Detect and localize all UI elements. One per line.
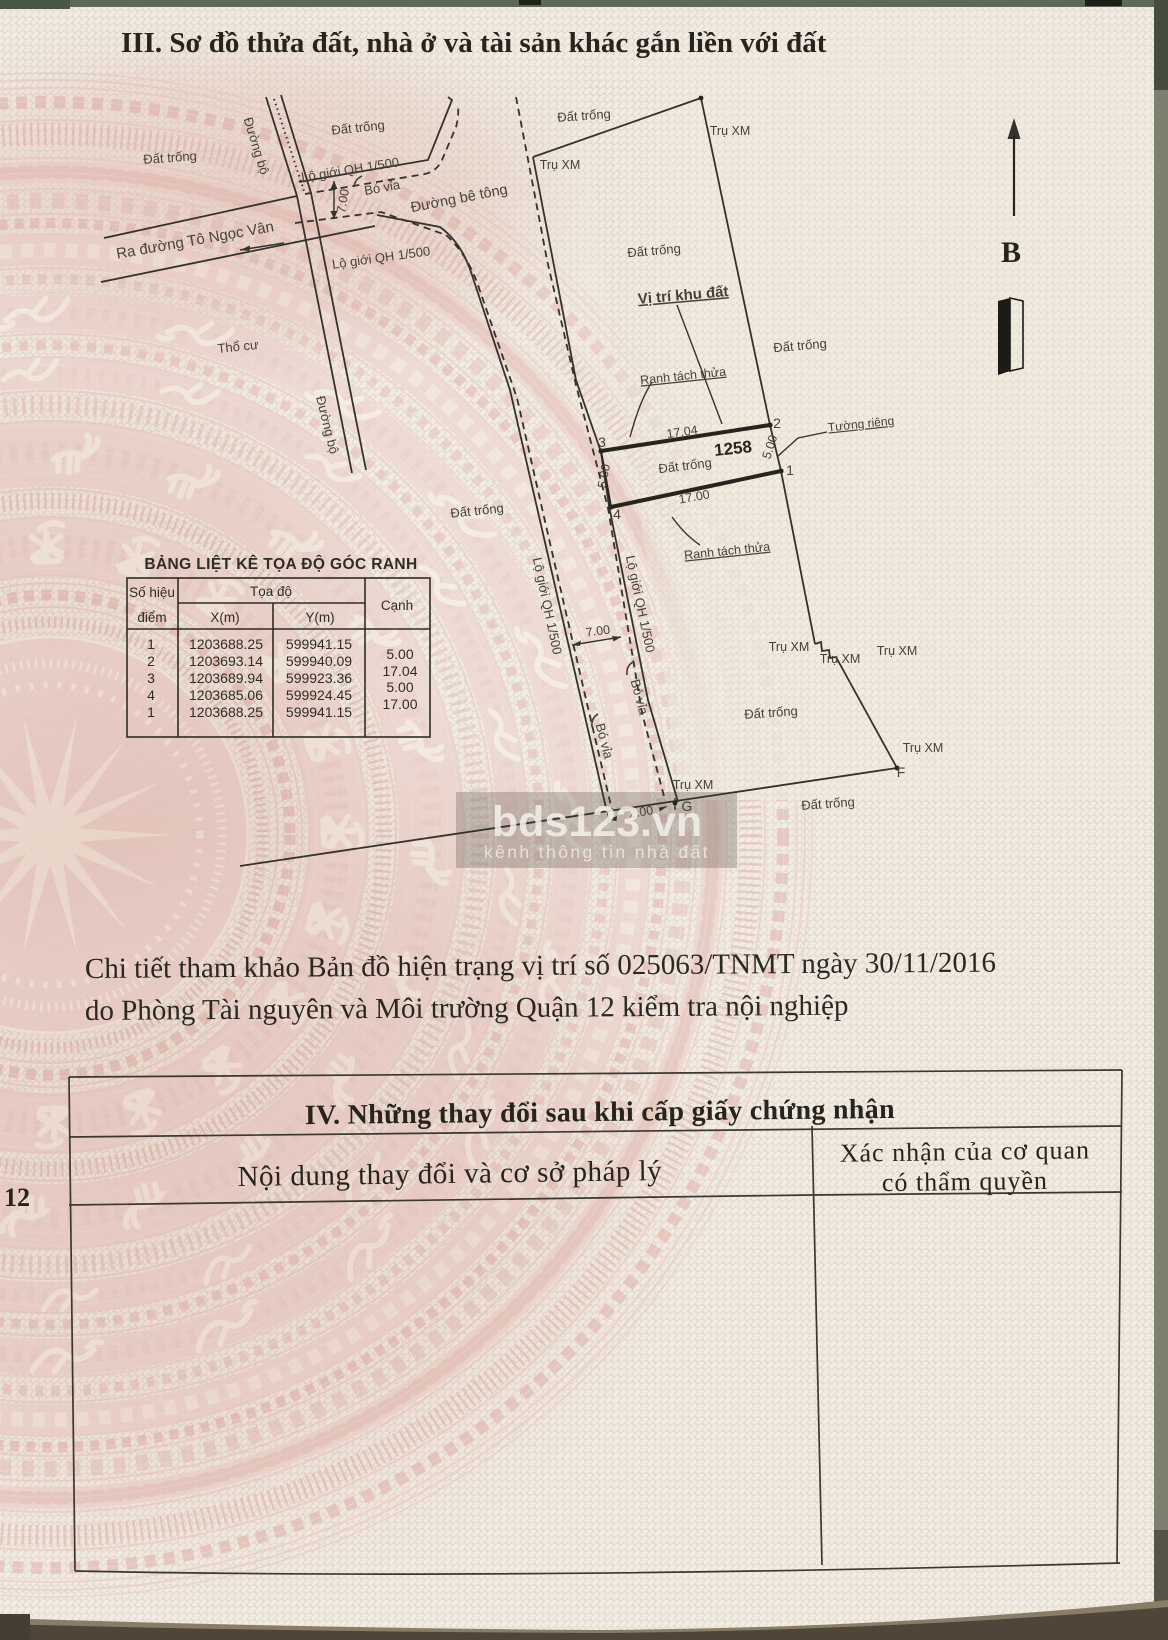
svg-text:Trụ XM: Trụ XM <box>673 778 714 792</box>
svg-text:2: 2 <box>773 415 781 431</box>
svg-text:Cạnh: Cạnh <box>381 598 413 613</box>
svg-text:3: 3 <box>147 670 155 686</box>
svg-text:III. Sơ đồ thửa đất, nhà ở và: III. Sơ đồ thửa đất, nhà ở và tài sản kh… <box>121 27 827 59</box>
svg-text:1203693.14: 1203693.14 <box>189 653 263 669</box>
svg-text:kênh thông tin nhà đất: kênh thông tin nhà đất <box>484 842 710 862</box>
svg-text:Trụ XM: Trụ XM <box>710 124 751 138</box>
svg-text:17.00: 17.00 <box>382 696 417 712</box>
svg-text:1203688.25: 1203688.25 <box>189 704 263 720</box>
svg-text:3: 3 <box>598 434 606 450</box>
svg-text:17.04: 17.04 <box>382 663 417 679</box>
svg-text:do Phòng Tài nguyên và Môi trư: do Phòng Tài nguyên và Môi trường Quận 1… <box>85 990 849 1027</box>
svg-text:2: 2 <box>147 653 155 669</box>
svg-text:bds123.vn: bds123.vn <box>492 798 702 846</box>
svg-text:X(m): X(m) <box>210 610 239 625</box>
svg-text:có thẩm quyền: có thẩm quyền <box>882 1166 1048 1197</box>
svg-text:Trụ XM: Trụ XM <box>540 158 581 172</box>
svg-text:4: 4 <box>147 687 155 703</box>
svg-text:Trụ XM: Trụ XM <box>769 640 810 654</box>
svg-text:599923.36: 599923.36 <box>286 670 352 686</box>
svg-text:1258: 1258 <box>713 437 753 460</box>
svg-text:Chi tiết tham khảo Bản đồ hiện: Chi tiết tham khảo Bản đồ hiện trạng vị … <box>85 947 996 985</box>
svg-text:BẢNG LIỆT KÊ TỌA ĐỘ GÓC RANH: BẢNG LIỆT KÊ TỌA ĐỘ GÓC RANH <box>144 555 417 573</box>
svg-text:4: 4 <box>613 506 621 522</box>
svg-text:5.00: 5.00 <box>386 679 413 695</box>
svg-text:1203688.25: 1203688.25 <box>189 636 263 652</box>
svg-text:1: 1 <box>786 462 794 478</box>
svg-text:Số hiệu: Số hiệu <box>129 585 175 600</box>
svg-text:599924.45: 599924.45 <box>286 687 352 703</box>
svg-text:1: 1 <box>147 704 155 720</box>
svg-text:1: 1 <box>147 636 155 652</box>
svg-text:1203685.06: 1203685.06 <box>189 687 263 703</box>
svg-text:12: 12 <box>4 1183 30 1212</box>
svg-text:Xác nhận của cơ quan: Xác nhận của cơ quan <box>840 1135 1091 1167</box>
svg-text:599941.15: 599941.15 <box>286 636 352 652</box>
svg-text:599941.15: 599941.15 <box>286 704 352 720</box>
svg-text:Tọa độ: Tọa độ <box>250 584 292 599</box>
svg-text:Y(m): Y(m) <box>305 610 334 625</box>
svg-text:điểm: điểm <box>137 610 166 625</box>
svg-text:Nội dung thay đổi và cơ sở phá: Nội dung thay đổi và cơ sở pháp lý <box>237 1155 662 1193</box>
svg-text:Trụ XM: Trụ XM <box>903 741 944 755</box>
svg-text:5.00: 5.00 <box>386 646 413 662</box>
svg-text:IV. Những thay đổi sau khi cấp: IV. Những thay đổi sau khi cấp giấy chứn… <box>305 1094 895 1131</box>
svg-text:Trụ XM: Trụ XM <box>877 644 918 658</box>
svg-text:1203689.94: 1203689.94 <box>189 670 263 686</box>
svg-text:B: B <box>1001 236 1021 269</box>
svg-text:Trụ XM: Trụ XM <box>820 652 861 666</box>
svg-text:F: F <box>897 764 906 780</box>
svg-text:599940.09: 599940.09 <box>286 653 352 669</box>
